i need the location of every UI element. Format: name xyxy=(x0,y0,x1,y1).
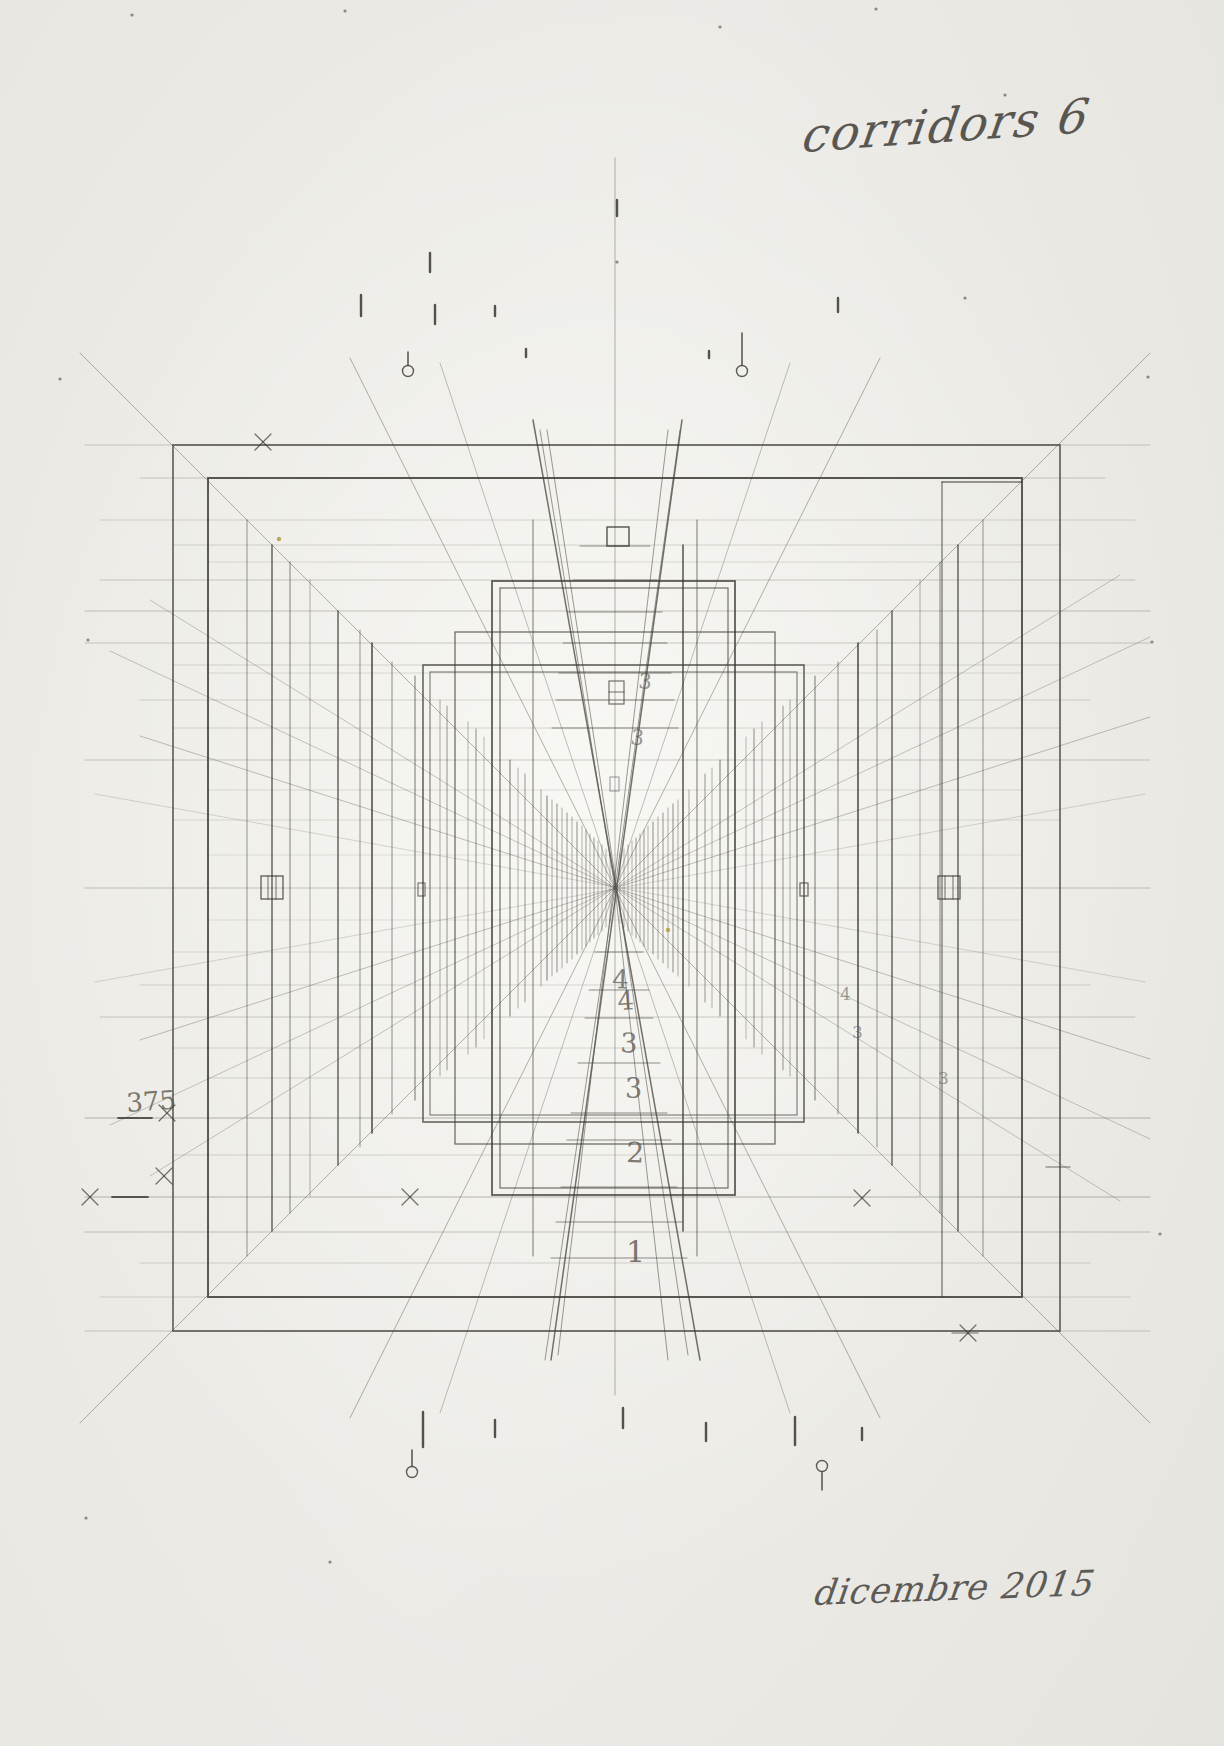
number-annotation: 3 xyxy=(620,1027,638,1059)
perspective-ray xyxy=(540,430,615,888)
scan-dot xyxy=(874,7,877,10)
perspective-ray xyxy=(140,736,1150,1059)
frame-rect xyxy=(938,876,960,899)
perspective-ray xyxy=(551,420,682,1360)
perspective-drawing: 37544332133433 xyxy=(0,0,1224,1746)
scanned-paper-sheet: 37544332133433 corridors 6 dicembre 2015 xyxy=(0,0,1224,1746)
perspective-ray xyxy=(615,888,668,1360)
number-annotation: 1 xyxy=(626,1234,645,1269)
number-annotation: 3 xyxy=(629,725,645,750)
frame-rect xyxy=(610,777,619,791)
number-annotation: 2 xyxy=(626,1136,645,1170)
number-annotation: 3 xyxy=(852,1022,863,1042)
scan-dot xyxy=(963,296,966,299)
scan-dot xyxy=(58,377,61,380)
scan-dot xyxy=(328,1560,331,1563)
scan-dot xyxy=(130,13,133,16)
number-annotation: 3 xyxy=(625,1073,642,1104)
perspective-ray xyxy=(615,430,680,888)
number-annotation: 3 xyxy=(638,669,653,694)
register-circle xyxy=(737,366,748,377)
paper-speck xyxy=(277,537,281,541)
register-circle xyxy=(403,366,414,377)
scan-dot xyxy=(1150,640,1153,643)
perspective-ray xyxy=(110,651,1150,1139)
scan-dot xyxy=(1158,1232,1161,1235)
scan-dot xyxy=(615,260,618,263)
register-circle xyxy=(817,1461,828,1472)
paper-speck xyxy=(666,928,670,932)
perspective-ray xyxy=(140,717,1150,1040)
scan-dot xyxy=(343,9,346,12)
perspective-ray xyxy=(150,600,1120,1201)
register-circle xyxy=(407,1467,418,1478)
scan-dot xyxy=(86,638,89,641)
number-annotation: 4 xyxy=(840,984,851,1004)
scan-dot xyxy=(718,25,721,28)
frame-rect xyxy=(607,527,629,546)
perspective-ray xyxy=(547,430,688,1355)
number-annotation: 3 xyxy=(938,1068,949,1088)
number-annotation: 375 xyxy=(125,1085,177,1118)
frame-rect xyxy=(418,883,425,896)
scan-dot xyxy=(1146,375,1149,378)
number-annotation: 4 xyxy=(617,985,635,1016)
scan-dot xyxy=(84,1516,87,1519)
